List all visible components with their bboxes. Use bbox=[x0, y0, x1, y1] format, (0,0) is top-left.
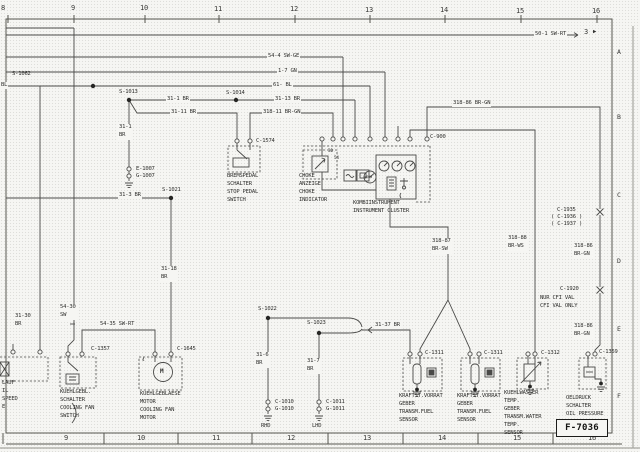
wire-label-1-7-gn: 1-7 GN bbox=[277, 68, 298, 75]
margin-letter-d: D bbox=[617, 258, 621, 266]
pin-label-54: 54 bbox=[334, 156, 339, 161]
wire-label-31-1-br: 31-1 BR bbox=[166, 96, 190, 103]
sheet-ref-number: 3 bbox=[584, 28, 588, 36]
margin-letter-b: B bbox=[617, 114, 621, 122]
ruler-top-8: 8 bbox=[1, 4, 5, 12]
pin-label-30: 30 bbox=[328, 149, 333, 154]
ruler-top-13: 13 bbox=[365, 6, 373, 14]
wire-label-31-3-br: 31-3 BR bbox=[118, 192, 142, 199]
note-cfi-only: NUR CFI VAL CFI VAL ONLY bbox=[540, 295, 577, 311]
component-label-fuel-sensor-2: KRAFTST.VORRAT GEBER TRANSM.FUEL SENSOR bbox=[457, 393, 501, 425]
ruler-top-12: 12 bbox=[290, 5, 298, 13]
note-lhd: LHD bbox=[312, 423, 321, 430]
ruler-top-11: 11 bbox=[214, 5, 222, 13]
connector-label-c1312: C-1312 bbox=[541, 350, 560, 357]
component-label-instrument-cluster: KOMBIINSTRUMENT INSTRUMENT CLUSTER bbox=[353, 200, 409, 216]
connector-label-c1311-first: C-1311 bbox=[425, 350, 444, 357]
splice-label-s1013: S-1013 bbox=[119, 89, 138, 96]
connector-label-c1920: C-1920 bbox=[560, 286, 579, 293]
ruler-bottom-12: 12 bbox=[287, 434, 295, 442]
connector-label-c900: C-900 bbox=[430, 134, 446, 141]
wire-label-31-13-br: 31-13 BR bbox=[274, 96, 301, 103]
wiring-diagram-sheet: 8 9 10 11 12 13 14 15 16 9 10 11 12 13 1… bbox=[0, 0, 640, 452]
connector-label-c1311-second: C-1311 bbox=[484, 350, 503, 357]
component-label-brake-switch: BREMSPEDAL SCHALTER STOP PEDAL SWITCH bbox=[227, 173, 258, 205]
connector-label-c1357: C-1357 bbox=[91, 346, 110, 353]
ruler-top-10: 10 bbox=[140, 4, 148, 12]
wire-label-31-11-br: 31-11 BR bbox=[170, 109, 197, 116]
component-label-fan-motor: KUEHLGEBLAESE MOTOR COOLING FAN MOTOR bbox=[140, 391, 180, 423]
component-label-fuel-sensor-1: KRAFTST.VORRAT GEBER TRANSM.FUEL SENSOR bbox=[399, 393, 443, 425]
connector-label-e1007: E-1007 bbox=[136, 166, 155, 173]
connector-label-c1574: C-1574 bbox=[256, 138, 275, 145]
wire-label-318-87-br-sw: 318-87 BR-SW bbox=[431, 238, 452, 254]
connector-label-c1359: C-1359 bbox=[599, 349, 618, 356]
wire-label-50-1-sw-rt: 50-1 SW-RT bbox=[534, 31, 567, 38]
component-label-idle-fragment: LAUF IL SPEED E bbox=[2, 380, 18, 412]
tachometer-scale-label: x600 bbox=[364, 175, 372, 180]
wire-label-61-bl: 61- BL bbox=[272, 82, 293, 89]
wire-label-31-30-br: 31-30 BR bbox=[15, 313, 31, 329]
motor-symbol-m: M bbox=[160, 368, 163, 375]
connector-label-g1010: G-1010 bbox=[275, 406, 294, 413]
wire-label-318-11-br-gn: 318-11 BR-GN bbox=[262, 109, 301, 116]
wire-label-318-86-br-gn-low: 318-86 BR-GN bbox=[573, 323, 594, 339]
connector-label-c1645: C-1645 bbox=[177, 346, 196, 353]
wire-label-31-7-br: 31-7 BR bbox=[306, 358, 320, 374]
ruler-top-14: 14 bbox=[440, 6, 448, 14]
schematic-linework bbox=[0, 0, 640, 452]
pin-label-4: 4 bbox=[142, 358, 144, 363]
ruler-top-15: 15 bbox=[516, 7, 524, 15]
margin-letter-f: F bbox=[617, 393, 621, 401]
title-block-sheet-code: F-7036 bbox=[556, 419, 608, 437]
splice-label-s1062: S-1062 bbox=[12, 71, 31, 78]
component-label-fan-switch: KUEHLGEBL. SCHALTER COOLING FAN SWITCH bbox=[60, 389, 94, 421]
wire-label-31-1-br-vertical: 31-1 BR bbox=[118, 124, 132, 140]
wire-label-54-4-sw-ge: 54-4 SW-GE bbox=[267, 53, 300, 60]
connector-label-c1937: ( C-1937 ) bbox=[551, 221, 582, 228]
ruler-bottom-10: 10 bbox=[137, 434, 145, 442]
connector-label-c1010: C-1010 bbox=[275, 399, 294, 406]
wire-label-54-35-sw-rt: 54-35 SW-RT bbox=[99, 321, 135, 328]
wire-label-318-86-br-gn-top: 318-86 BR-GN bbox=[452, 100, 491, 107]
component-label-water-temp-sensor: KUEHLWASSER TEMP. GEBER TRANSM.WATER TEM… bbox=[504, 390, 541, 438]
ruler-top-9: 9 bbox=[71, 4, 75, 12]
wire-label-bl-fragment: BL bbox=[0, 82, 8, 89]
connector-label-g1011: G-1011 bbox=[326, 406, 345, 413]
wire-label-31-18-br: 31-18 BR bbox=[160, 266, 178, 282]
connector-label-c1011: C-1011 bbox=[326, 399, 345, 406]
wire-label-31-37-br: 31-37 BR bbox=[374, 322, 401, 329]
ruler-top-16: 16 bbox=[592, 7, 600, 15]
margin-letter-c: C bbox=[617, 192, 621, 200]
margin-letter-e: E bbox=[617, 326, 621, 334]
splice-label-s1023: S-1023 bbox=[307, 320, 326, 327]
component-label-choke-indicator: CHOKE ANZEIGE CHOKE INDICATOR bbox=[299, 173, 327, 205]
sheet-ref-arrow-icon: ▶ bbox=[593, 29, 596, 36]
ruler-bottom-14: 14 bbox=[438, 434, 446, 442]
wire-label-31-6-br: 31-6 BR bbox=[255, 352, 269, 368]
wire-label-54-30-sw: 54-30 SW bbox=[59, 304, 77, 320]
wire-label-318-88-br-ws: 318-88 BR-WS bbox=[507, 235, 528, 251]
splice-label-s1014: S-1014 bbox=[226, 90, 245, 97]
ruler-bottom-13: 13 bbox=[363, 434, 371, 442]
wire-label-318-86-br-gn-mid: 318-86 BR-GN bbox=[573, 243, 594, 259]
splice-label-s1022: S-1022 bbox=[258, 306, 277, 313]
note-rhd: RHD bbox=[261, 423, 270, 430]
ruler-bottom-9: 9 bbox=[64, 434, 68, 442]
connector-label-g1007: G-1007 bbox=[136, 173, 155, 180]
connector-label-c1936: ( C-1936 ) bbox=[551, 214, 582, 221]
splice-label-s1021: S-1021 bbox=[162, 187, 181, 194]
connector-label-c1935: C-1935 bbox=[557, 207, 576, 214]
ruler-bottom-11: 11 bbox=[212, 434, 220, 442]
margin-letter-a: A bbox=[617, 49, 621, 57]
